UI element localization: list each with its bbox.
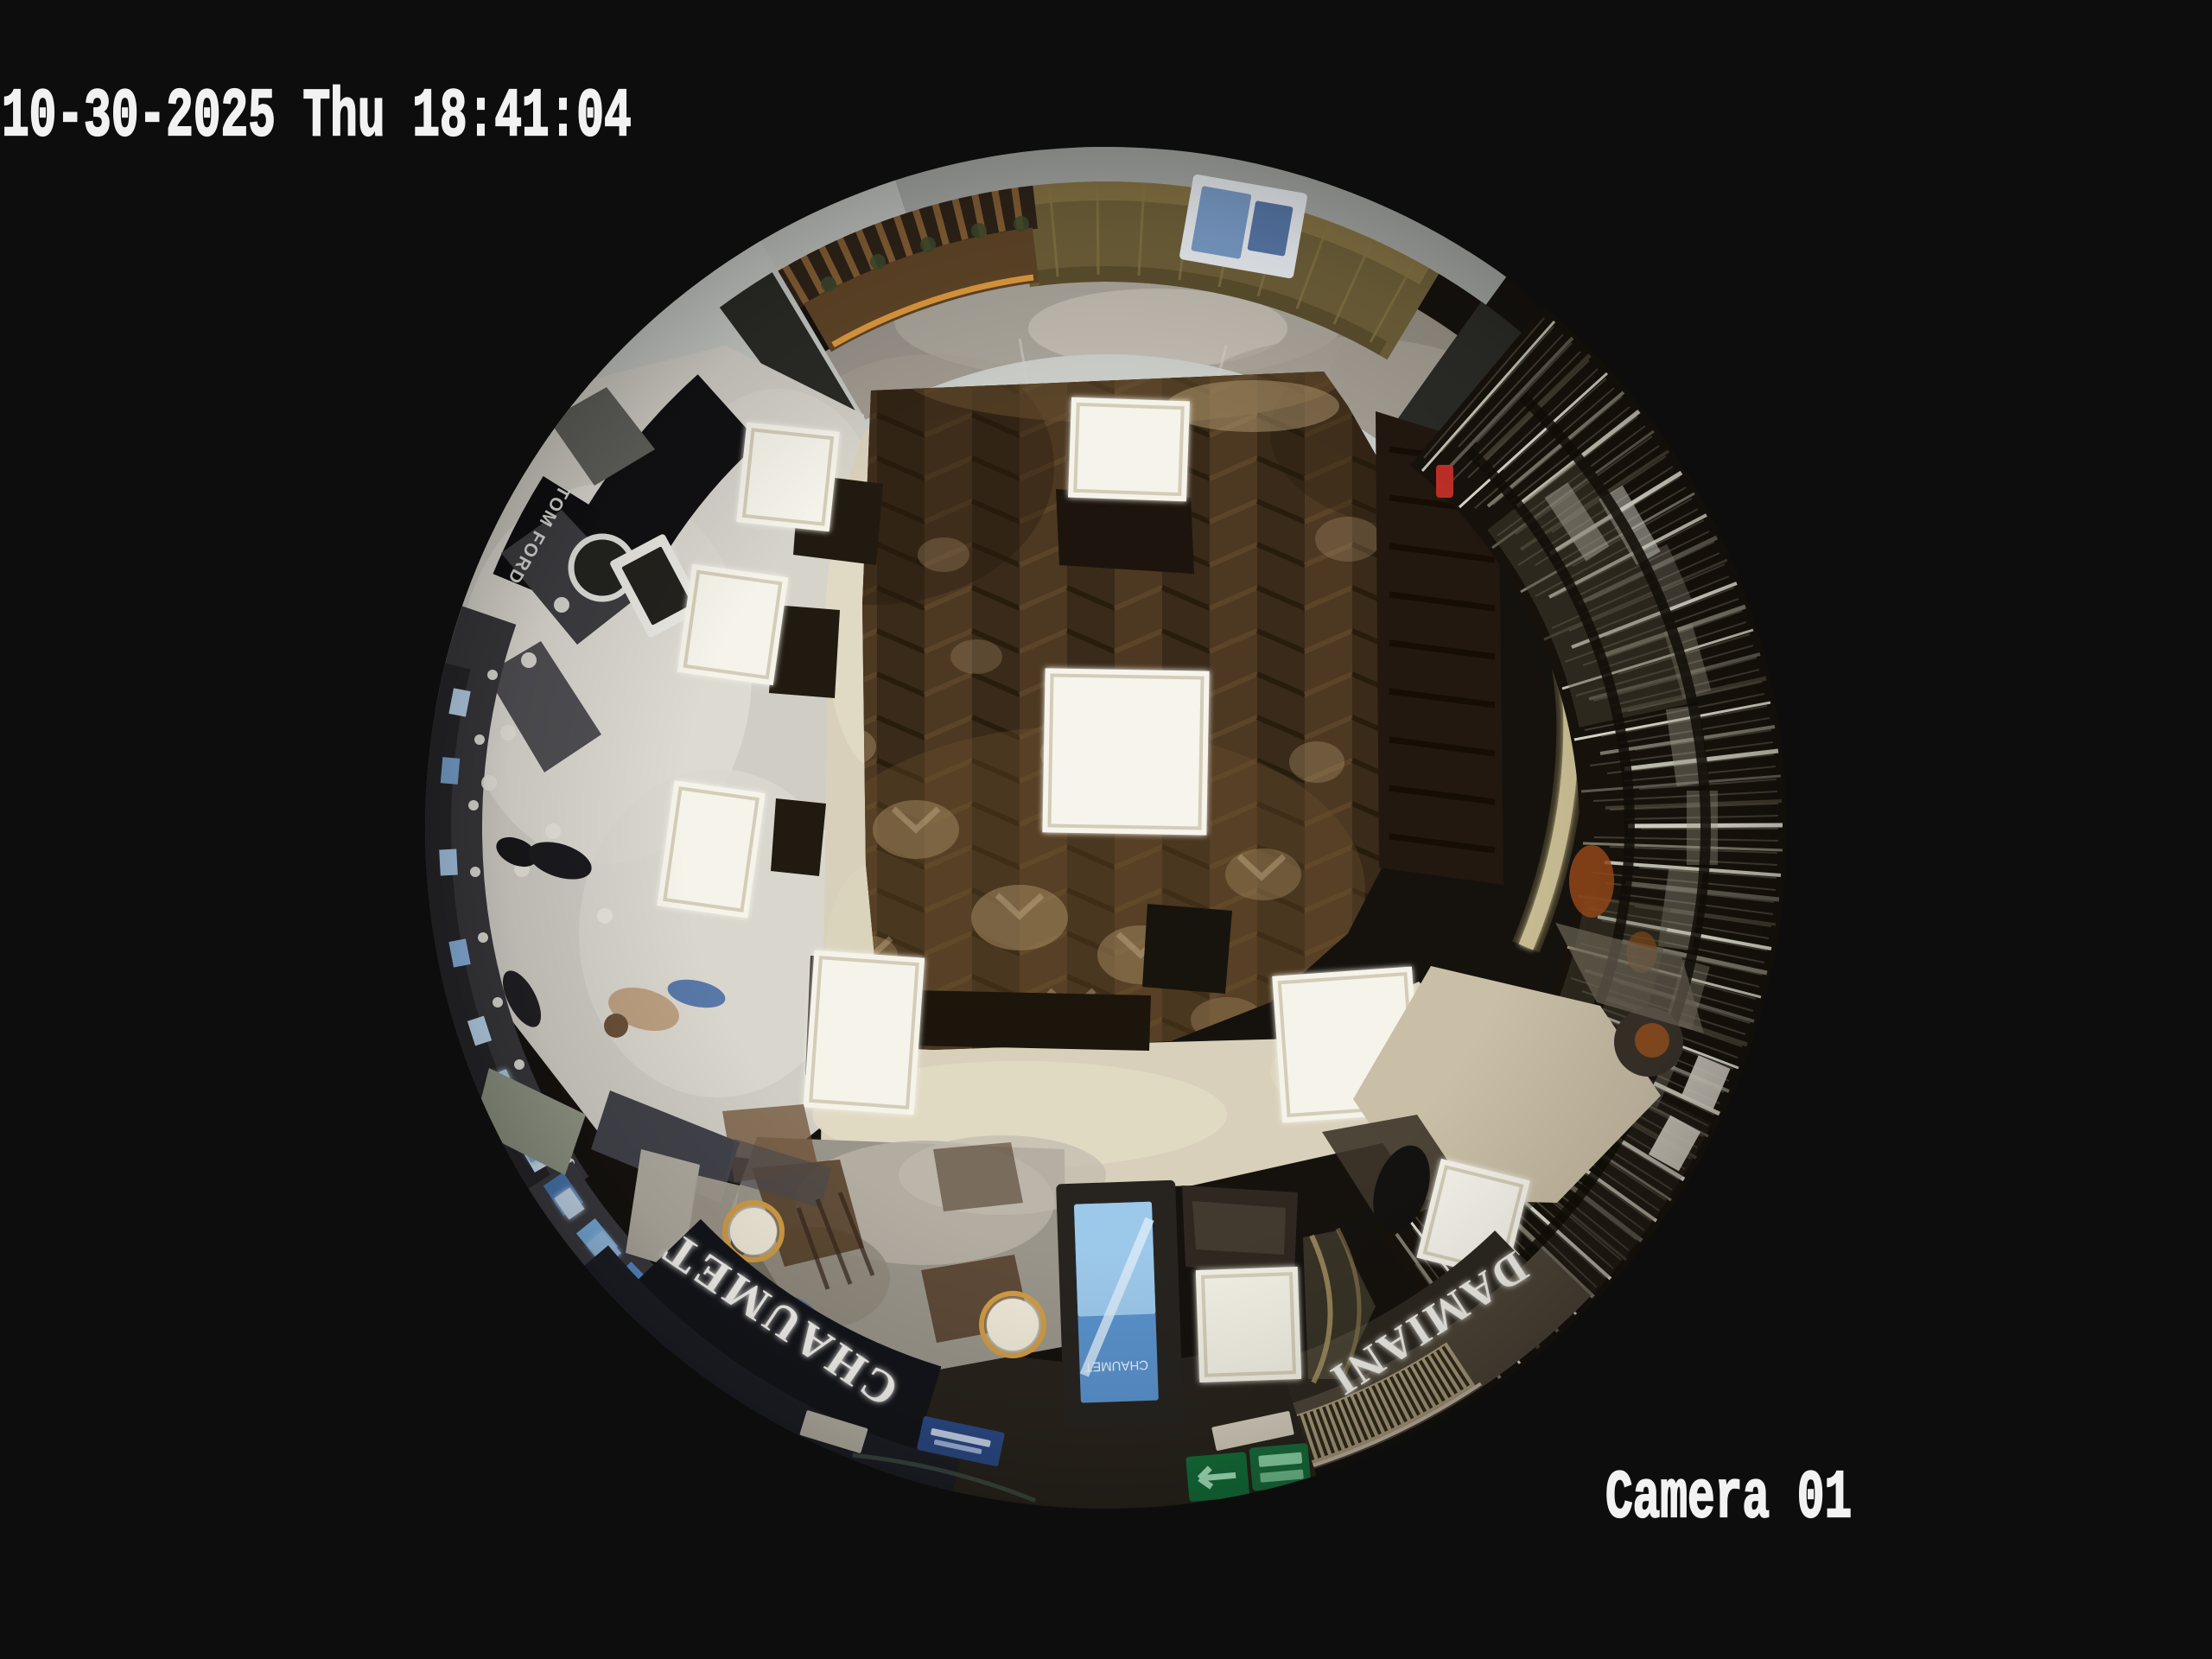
svg-text:Camera 01: Camera 01: [1605, 1460, 1852, 1537]
svg-text:10-30-2025 Thu 18:41:04: 10-30-2025 Thu 18:41:04: [2, 79, 632, 156]
